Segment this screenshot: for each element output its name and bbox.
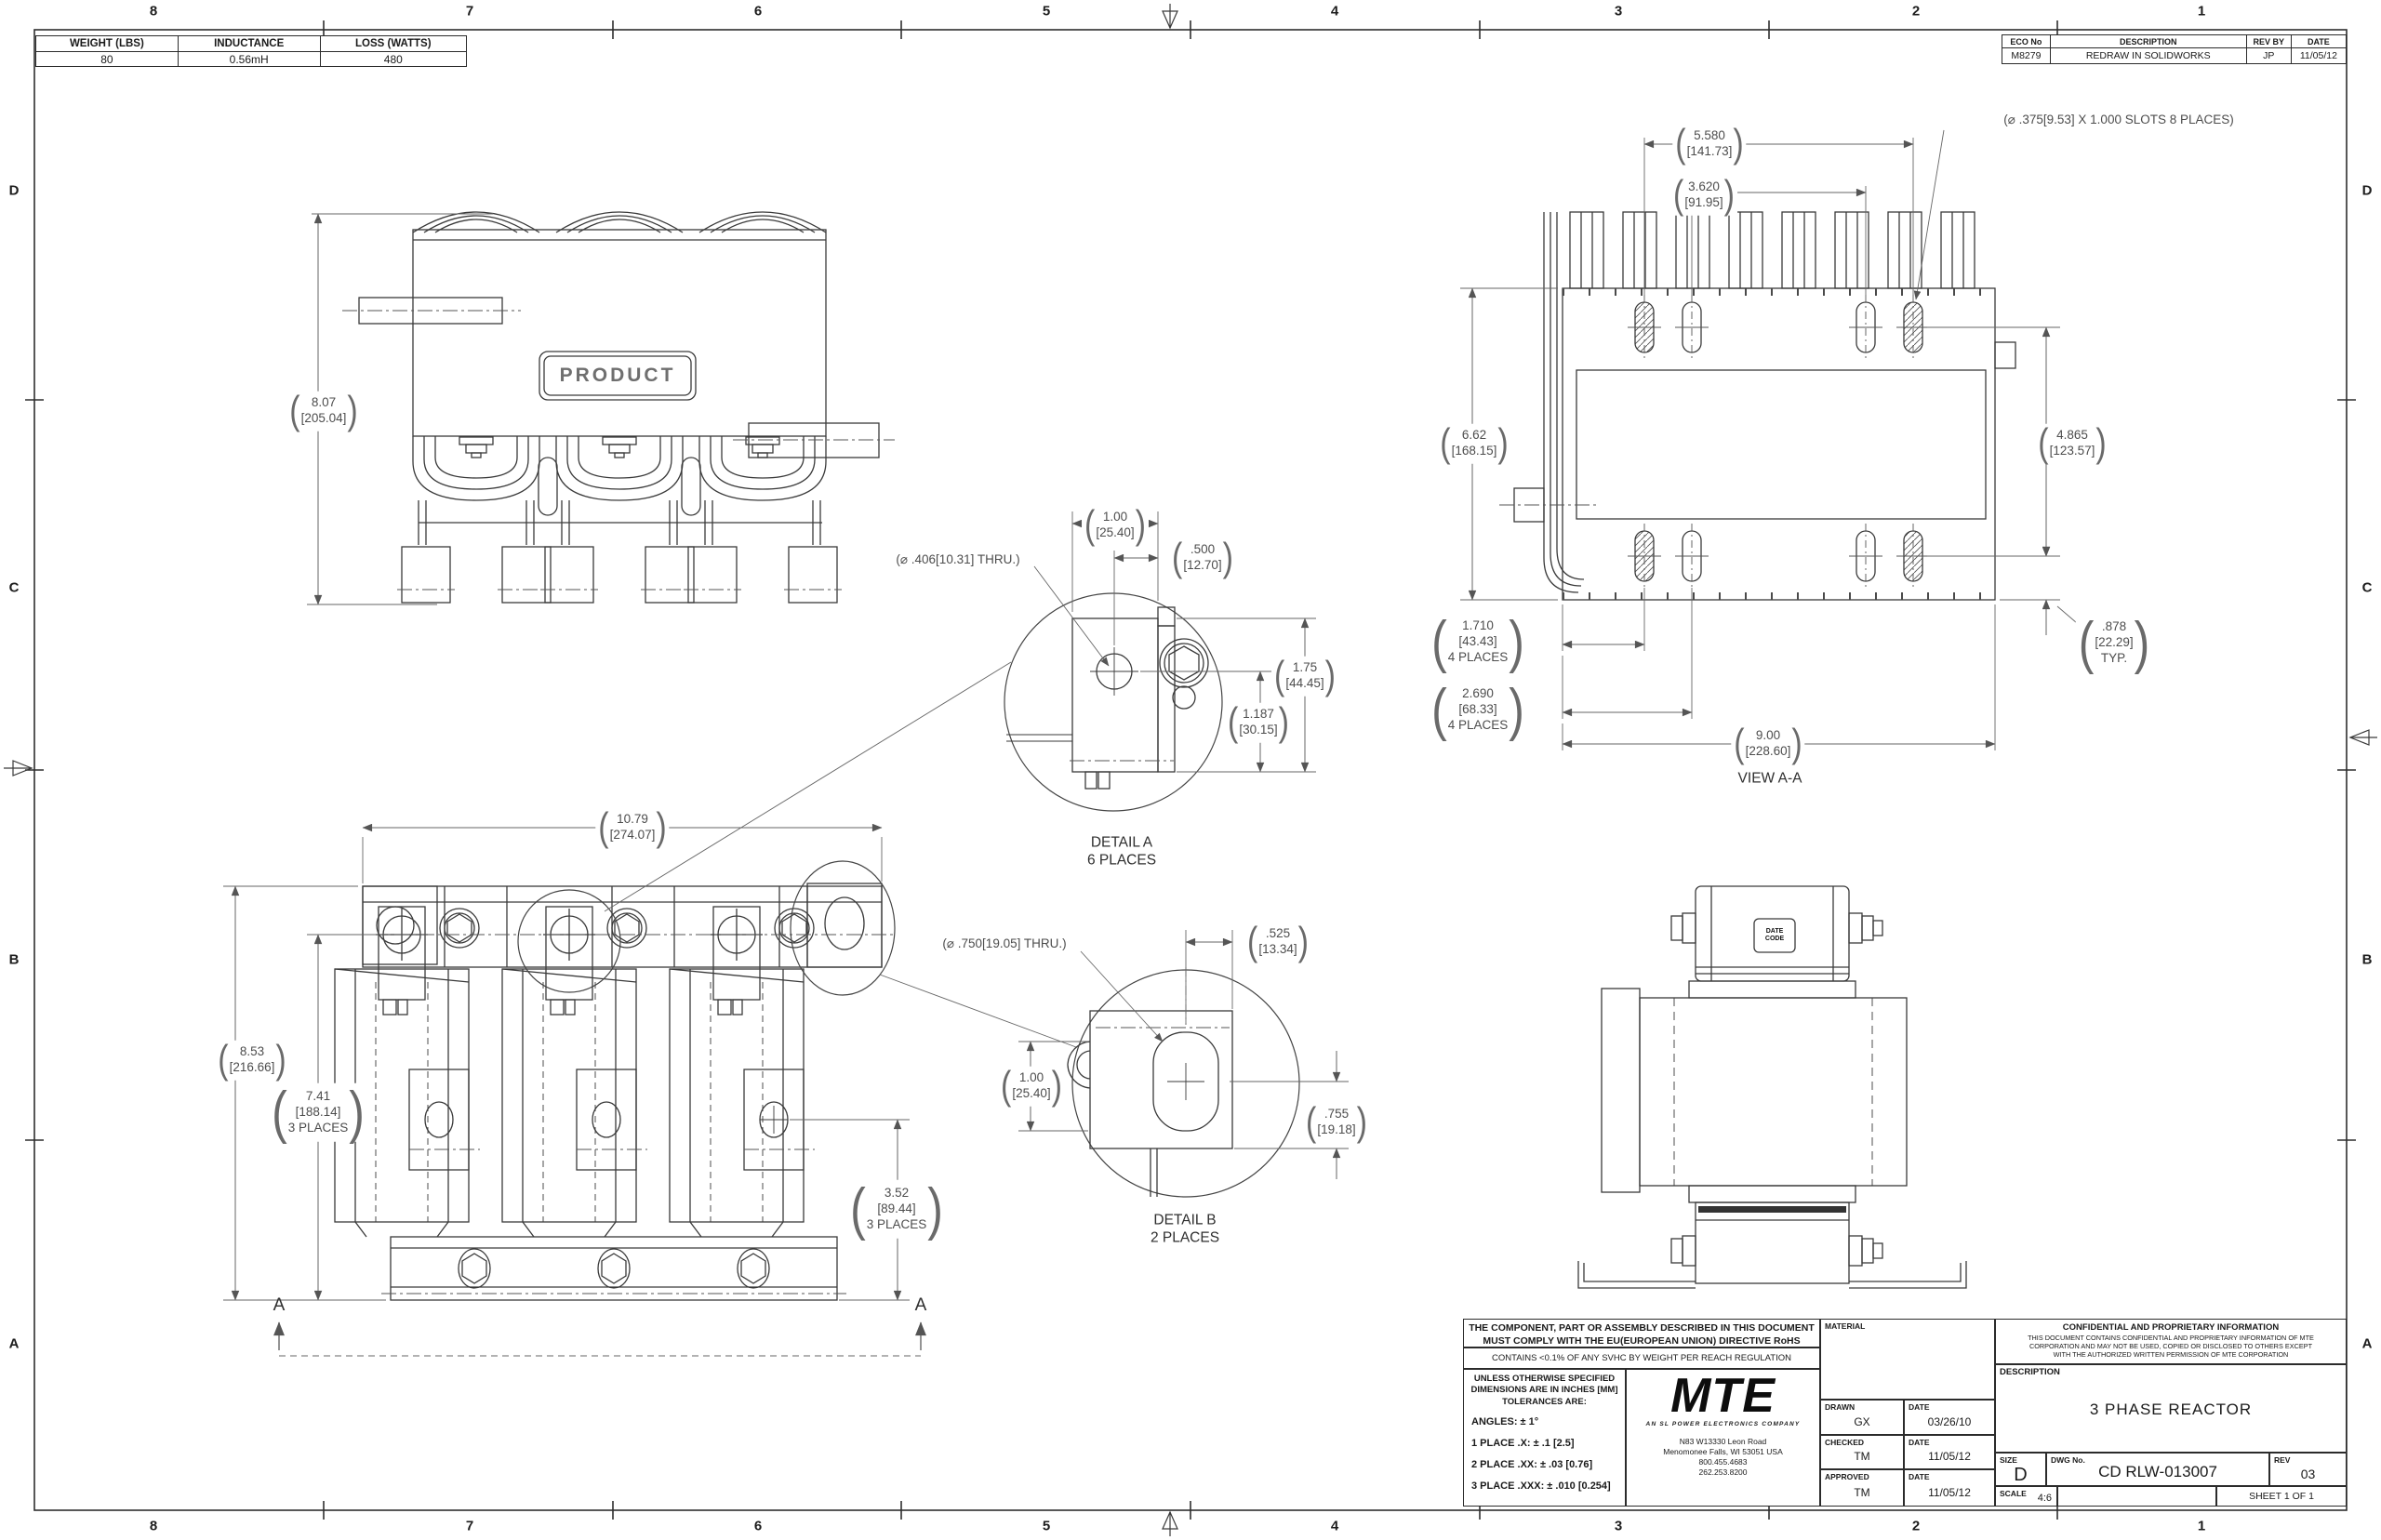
reach-statement: CONTAINS <0.1% OF ANY SVHC BY WEIGHT PER… (1463, 1347, 1820, 1369)
zone-col-top: 6 (754, 4, 762, 20)
zone-col-bottom: 8 (150, 1519, 157, 1534)
paren: ) (1508, 673, 1525, 746)
paren: ( (1430, 673, 1448, 746)
zone-row-left: C (9, 580, 20, 596)
material-label: MATERIAL (1825, 1321, 1865, 1331)
dim-db-525: ( .525 [13.34] ) (1244, 923, 1311, 962)
rev-label: REV (2274, 1455, 2290, 1465)
eco-description: REDRAW IN SOLIDWORKS (2050, 48, 2246, 64)
dim-aa-4865: ( 4.865 [123.57] ) (2035, 424, 2108, 464)
mte-address: N83 W13330 Leon Road Menomonee Falls, WI… (1627, 1437, 1819, 1478)
dim-text: .500 [12.70] (1183, 542, 1221, 574)
spec-value-weight: 80 (36, 52, 179, 67)
rev-value: 03 (2270, 1467, 2346, 1481)
eco-revby: JP (2246, 48, 2291, 64)
tolerance-1place: 1 PLACE .X: ± .1 [2.5] (1471, 1438, 1625, 1449)
dim-text: 5.580 [141.73] (1687, 128, 1733, 160)
view-aa-dims (1460, 130, 2083, 750)
dim-aa-2690: ( 2.690 [68.33] 4 PLACES ) (1429, 681, 1527, 739)
spec-header: INDUCTANCE (178, 36, 320, 52)
detail-indicator-circles (518, 662, 1076, 1047)
paren: ) (346, 386, 358, 435)
scale-cell: SCALE 4:6 (1995, 1486, 2057, 1507)
paren: ( (2078, 606, 2095, 679)
sheet-cell: SHEET 1 OF 1 (2216, 1486, 2347, 1507)
date-label: DATE (1909, 1402, 1930, 1412)
approved-label: APPROVED (1825, 1472, 1869, 1481)
zone-col-top: 4 (1331, 4, 1338, 20)
dim-front-height: ( 8.07 [205.04] ) (286, 392, 360, 431)
scale-value: 4:6 (2038, 1493, 2052, 1504)
dim-text: 1.00 [25.40] (1096, 510, 1134, 541)
paren: ) (1222, 533, 1234, 582)
paren: ( (1227, 697, 1239, 747)
view-front-top (359, 212, 879, 603)
front-top-centerlines (342, 311, 895, 590)
dim-fb-853: ( 8.53 [216.66] ) (215, 1041, 288, 1081)
dim-text: 1.710 [43.43] 4 PLACES (1448, 618, 1509, 666)
zone-col-bottom: 7 (466, 1519, 473, 1534)
paren: ( (1674, 119, 1686, 168)
eco-header: REV BY (2246, 35, 2291, 48)
dim-aa-1710: ( 1.710 [43.43] 4 PLACES ) (1429, 613, 1527, 671)
approved-value: TM (1821, 1486, 1903, 1499)
dim-text: 4.865 [123.57] (2050, 428, 2095, 459)
checked-date: 11/05/12 (1905, 1450, 1994, 1463)
scale-empty-cell (2057, 1486, 2216, 1507)
dim-aa-5580: ( 5.580 [141.73] ) (1672, 125, 1746, 165)
dim-text: 1.00 [25.40] (1012, 1070, 1050, 1102)
paren: ) (1135, 500, 1147, 550)
zone-col-top: 3 (1615, 4, 1622, 20)
paren: ) (1508, 605, 1525, 678)
tolerance-header: UNLESS OTHERWISE SPECIFIED DIMENSIONS AR… (1464, 1374, 1625, 1408)
paren: ) (1324, 651, 1337, 700)
drawn-label: DRAWN (1825, 1402, 1855, 1412)
note-slots: (⌀ .375[9.53] X 1.000 SLOTS 8 PLACES) (2002, 113, 2236, 127)
zone-row-left: D (9, 183, 20, 199)
detail-a-title: DETAIL A 6 PLACES (1087, 834, 1156, 870)
dim-aa-662: ( 6.62 [168.15] ) (1437, 424, 1510, 464)
zone-col-bottom: 6 (754, 1519, 762, 1534)
paren: ( (1246, 917, 1258, 966)
confidential-cell: CONFIDENTIAL AND PROPRIETARY INFORMATION… (1995, 1319, 2347, 1364)
zone-col-top: 7 (466, 4, 473, 20)
size-value: D (1996, 1465, 2045, 1486)
front-bottom-centerlines (344, 935, 893, 1294)
paren: ) (1356, 1097, 1368, 1147)
paren: ( (1430, 605, 1448, 678)
dim-text: .525 [13.34] (1258, 926, 1297, 958)
view-side (1578, 886, 1966, 1288)
paren: ( (2037, 418, 2049, 468)
zone-col-top: 5 (1043, 4, 1050, 20)
tolerance-3place: 3 PLACE .XXX: ± .010 [0.254] (1471, 1480, 1625, 1492)
dim-da-1187: ( 1.187 [30.15] ) (1225, 703, 1292, 743)
spec-header: WEIGHT (LBS) (36, 36, 179, 52)
drawing-sheet: 8 7 6 5 4 3 2 1 8 7 6 5 4 3 2 1 D C B A … (0, 0, 2381, 1540)
dim-fb-352: ( 3.52 [89.44] 3 PLACES ) (847, 1180, 946, 1239)
dim-text: 3.52 [89.44] 3 PLACES (867, 1186, 927, 1233)
spec-value-loss: 480 (320, 52, 466, 67)
dim-text: 7.41 [188.14] 3 PLACES (288, 1089, 349, 1136)
description-value: 3 PHASE REACTOR (1996, 1401, 2346, 1419)
material-cell: MATERIAL (1820, 1319, 1995, 1400)
approved-date-cell: DATE 11/05/12 (1904, 1469, 1995, 1507)
dim-da-175: ( 1.75 [44.45] ) (1271, 657, 1338, 697)
detail-b (1068, 970, 1299, 1197)
paren: ) (1051, 1061, 1063, 1110)
dim-db-100: ( 1.00 [25.40] ) (998, 1067, 1065, 1107)
dim-text: 8.53 [216.66] (230, 1044, 275, 1076)
paren: ) (2134, 606, 2151, 679)
dim-text: .755 [19.18] (1317, 1107, 1355, 1138)
eco-header: DATE (2291, 35, 2346, 48)
view-aa (1514, 212, 2015, 600)
drawn-cell: DRAWN GX (1820, 1400, 1904, 1435)
note-detail-b-hole: (⌀ .750[19.05] THRU.) (940, 936, 1068, 951)
confidential-body: THIS DOCUMENT CONTAINS CONFIDENTIAL AND … (1996, 1333, 2346, 1359)
zone-row-right: D (2362, 183, 2373, 199)
zone-col-bottom: 5 (1043, 1519, 1050, 1534)
paren: ( (1084, 500, 1096, 550)
dim-aa-3620: ( 3.620 [91.95] ) (1670, 176, 1737, 216)
drawing-linework (0, 0, 2381, 1540)
paren: ) (1732, 119, 1744, 168)
section-letter-a-right: A (915, 1295, 927, 1316)
approved-cell: APPROVED TM (1820, 1469, 1904, 1507)
paren: ( (849, 1173, 867, 1245)
zone-col-bottom: 1 (2198, 1519, 2205, 1534)
zone-col-bottom: 2 (1912, 1519, 1920, 1534)
paren: ( (1439, 418, 1451, 468)
detail-b-centerlines (1096, 967, 1230, 1028)
view-front-bottom (335, 883, 882, 1300)
dim-text: 10.79 [274.07] (610, 812, 656, 843)
paren: ) (1297, 917, 1310, 966)
confidential-title: CONFIDENTIAL AND PROPRIETARY INFORMATION (1996, 1322, 2346, 1333)
paren: ( (1171, 533, 1183, 582)
eco-number: M8279 (2002, 48, 2051, 64)
tolerance-block: UNLESS OTHERWISE SPECIFIED DIMENSIONS AR… (1463, 1369, 1626, 1507)
paren: ) (655, 803, 667, 852)
zone-row-right: A (2362, 1336, 2373, 1352)
detail-b-dims (1018, 930, 1349, 1179)
paren: ) (1496, 418, 1509, 468)
detail-a (1004, 593, 1222, 811)
zone-col-bottom: 4 (1331, 1519, 1338, 1534)
dim-text: 8.07 [205.04] (301, 395, 347, 427)
logo-block: MTE AN SL POWER ELECTRONICS COMPANY N83 … (1626, 1369, 1820, 1507)
zone-row-right: C (2362, 580, 2373, 596)
paren: ) (1278, 697, 1290, 747)
drawn-date: 03/26/10 (1905, 1415, 1994, 1428)
rohs-statement: THE COMPONENT, PART OR ASSEMBLY DESCRIBE… (1463, 1319, 1820, 1347)
paren: ) (2095, 418, 2107, 468)
dim-fb-741: ( 7.41 [188.14] 3 PLACES ) (269, 1083, 367, 1142)
paren: ) (1790, 719, 1802, 768)
section-letter-a-left: A (273, 1295, 286, 1316)
dim-da-500: ( .500 [12.70] ) (1169, 538, 1236, 578)
mte-logo: MTE (1627, 1372, 1819, 1420)
checked-label: CHECKED (1825, 1438, 1864, 1447)
paren: ( (1305, 1097, 1317, 1147)
dim-text: 1.75 [44.45] (1285, 660, 1324, 692)
checked-cell: CHECKED TM (1820, 1435, 1904, 1469)
paren: ( (1672, 170, 1684, 219)
eco-header: ECO No (2002, 35, 2051, 48)
zone-col-top: 8 (150, 4, 157, 20)
dim-da-100: ( 1.00 [25.40] ) (1082, 506, 1149, 546)
description-cell: DESCRIPTION 3 PHASE REACTOR (1995, 1364, 2347, 1453)
paren: ( (217, 1035, 229, 1084)
zone-row-right: B (2362, 952, 2373, 968)
view-aa-title: VIEW A-A (1738, 769, 1802, 787)
product-nameplate: PRODUCT (560, 365, 676, 387)
dim-text: .878 [22.29] TYP. (2095, 619, 2133, 667)
zone-col-top: 2 (1912, 4, 1920, 20)
dim-text: 6.62 [168.15] (1452, 428, 1497, 459)
dwg-number: CD RLW-013007 (2047, 1463, 2268, 1481)
spec-header: LOSS (WATTS) (320, 36, 466, 52)
scale-label: SCALE (2000, 1489, 2027, 1498)
dim-db-755: ( .755 [19.18] ) (1303, 1103, 1370, 1143)
paren: ) (348, 1076, 366, 1148)
spec-value-inductance: 0.56mH (178, 52, 320, 67)
checked-date-cell: DATE 11/05/12 (1904, 1435, 1995, 1469)
dim-aa-878-typ: ( .878 [22.29] TYP. ) (2076, 614, 2153, 672)
zone-row-left: A (9, 1336, 20, 1352)
size-cell: SIZE D (1995, 1453, 2046, 1486)
sheet-border (25, 20, 2356, 1520)
paren: ( (597, 803, 609, 852)
paren: ( (271, 1076, 288, 1148)
dim-text: 2.690 [68.33] 4 PLACES (1448, 686, 1509, 734)
date-label: DATE (1909, 1472, 1930, 1481)
drawn-date-cell: DATE 03/26/10 (1904, 1400, 1995, 1435)
zone-row-left: B (9, 952, 20, 968)
dim-text: 1.187 [30.15] (1239, 707, 1277, 738)
date-label: DATE (1909, 1438, 1930, 1447)
zone-col-bottom: 3 (1615, 1519, 1622, 1534)
eco-date: 11/05/12 (2291, 48, 2346, 64)
dim-text: 9.00 [228.60] (1746, 728, 1791, 760)
title-block: THE COMPONENT, PART OR ASSEMBLY DESCRIBE… (1463, 1319, 2347, 1507)
paren: ( (1000, 1061, 1012, 1110)
eco-header: DESCRIPTION (2050, 35, 2246, 48)
description-label: DESCRIPTION (2000, 1367, 2060, 1377)
checked-value: TM (1821, 1450, 1903, 1463)
paren: ) (1723, 170, 1736, 219)
rev-cell: REV 03 (2269, 1453, 2347, 1486)
paren: ( (288, 386, 300, 435)
mte-tagline: AN SL POWER ELECTRONICS COMPANY (1627, 1421, 1819, 1427)
dim-fb-1079: ( 10.79 [274.07] ) (595, 808, 669, 848)
centering-arrows (4, 4, 2377, 1536)
dwg-cell: DWG No. CD RLW-013007 (2046, 1453, 2269, 1486)
tolerance-2place: 2 PLACE .XX: ± .03 [0.76] (1471, 1459, 1625, 1470)
paren: ) (926, 1173, 944, 1245)
paren: ( (1733, 719, 1745, 768)
date-code-label: DATE CODE (1765, 928, 1784, 943)
dim-text: 3.620 [91.95] (1684, 179, 1723, 211)
paren: ( (1273, 651, 1285, 700)
zone-col-top: 1 (2198, 4, 2205, 20)
note-detail-a-hole: (⌀ .406[10.31] THRU.) (894, 552, 1021, 567)
drawn-value: GX (1821, 1415, 1903, 1428)
spec-table: WEIGHT (LBS) INDUCTANCE LOSS (WATTS) 80 … (35, 35, 467, 67)
tolerance-angles: ANGLES: ± 1° (1471, 1416, 1625, 1427)
approved-date: 11/05/12 (1905, 1486, 1994, 1499)
dim-aa-900: ( 9.00 [228.60] ) (1731, 724, 1804, 764)
eco-table: ECO No DESCRIPTION REV BY DATE M8279 RED… (2002, 34, 2347, 64)
detail-b-title: DETAIL B 2 PLACES (1151, 1212, 1219, 1248)
size-label: SIZE (2000, 1455, 2017, 1465)
